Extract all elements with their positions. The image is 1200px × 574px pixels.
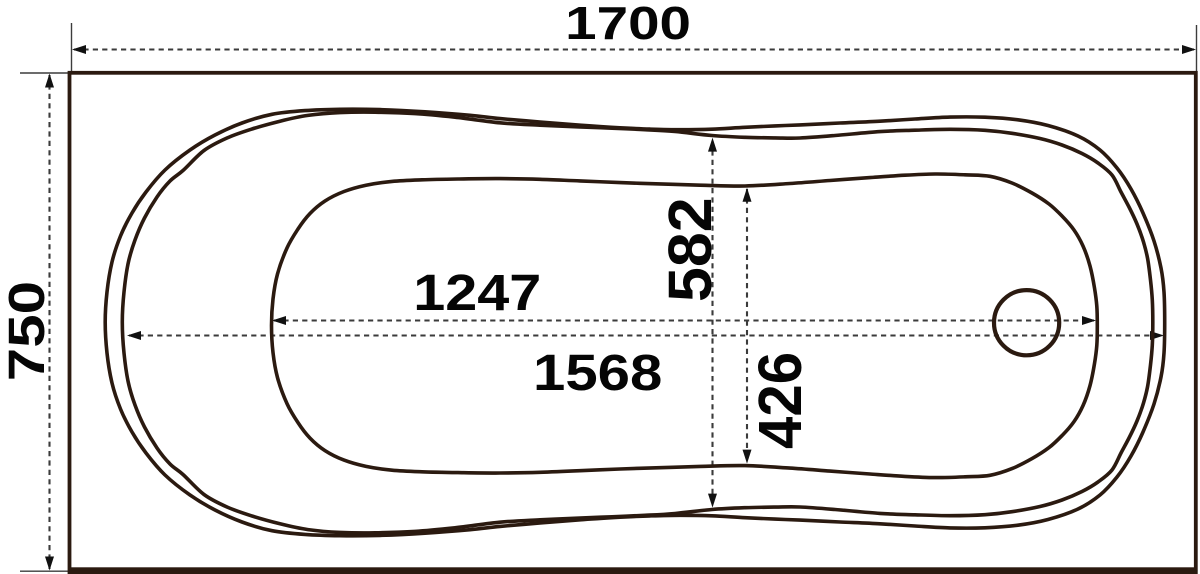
svg-text:582: 582 <box>656 197 724 302</box>
svg-text:1700: 1700 <box>565 0 691 49</box>
svg-text:1247: 1247 <box>413 263 541 321</box>
svg-text:1568: 1568 <box>533 343 662 401</box>
svg-text:426: 426 <box>746 352 814 449</box>
svg-text:750: 750 <box>0 281 55 381</box>
